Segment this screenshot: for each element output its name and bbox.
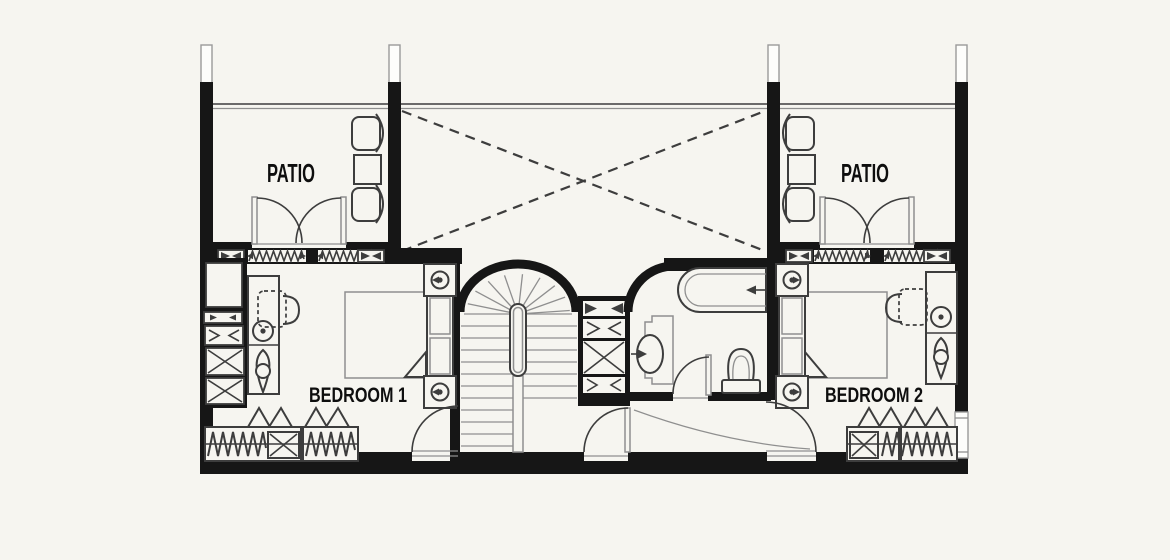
handrail <box>510 304 526 452</box>
patio-side-table <box>354 155 381 184</box>
patio-armchair <box>352 114 383 152</box>
bathtub <box>678 268 766 312</box>
hatched-pier <box>578 296 630 406</box>
wall-segment <box>458 452 584 461</box>
pillar-tip <box>389 45 400 83</box>
pillar-tip <box>956 45 967 83</box>
paper-background <box>0 0 1170 560</box>
wall-segment <box>346 242 388 248</box>
bedroom2-label: BEDROOM 2 <box>825 384 923 407</box>
wall-segment <box>213 242 252 248</box>
bathroom-bottom-wall-left <box>630 392 673 401</box>
bedside-lamp <box>424 264 456 296</box>
pillar-tip <box>768 45 779 83</box>
patio-armchair <box>783 114 814 152</box>
bedside-lamp <box>776 264 808 296</box>
accordion-door-band-right <box>780 248 955 264</box>
wall-segment <box>780 242 820 248</box>
bedroom1-label: BEDROOM 1 <box>309 384 407 407</box>
bedside-lamp <box>424 376 456 408</box>
patio-side-table <box>788 155 815 184</box>
right-center-pier <box>767 82 780 248</box>
bedside-lamp <box>776 376 808 408</box>
left-center-pier <box>388 82 401 248</box>
bottom-wall <box>200 461 968 474</box>
floor-plan-drawing: PATIO PATIO <box>0 0 1170 560</box>
wall-cabinet-blocks <box>200 258 247 408</box>
patio-armchair <box>783 185 814 223</box>
wall-segment <box>914 242 955 248</box>
patio-right-label: PATIO <box>841 158 889 188</box>
pillar-tip <box>201 45 212 83</box>
patio-left-label: PATIO <box>267 158 315 188</box>
patio-armchair <box>352 185 383 223</box>
floor-plan-page: PATIO PATIO <box>0 0 1170 560</box>
wall-segment <box>628 452 767 461</box>
